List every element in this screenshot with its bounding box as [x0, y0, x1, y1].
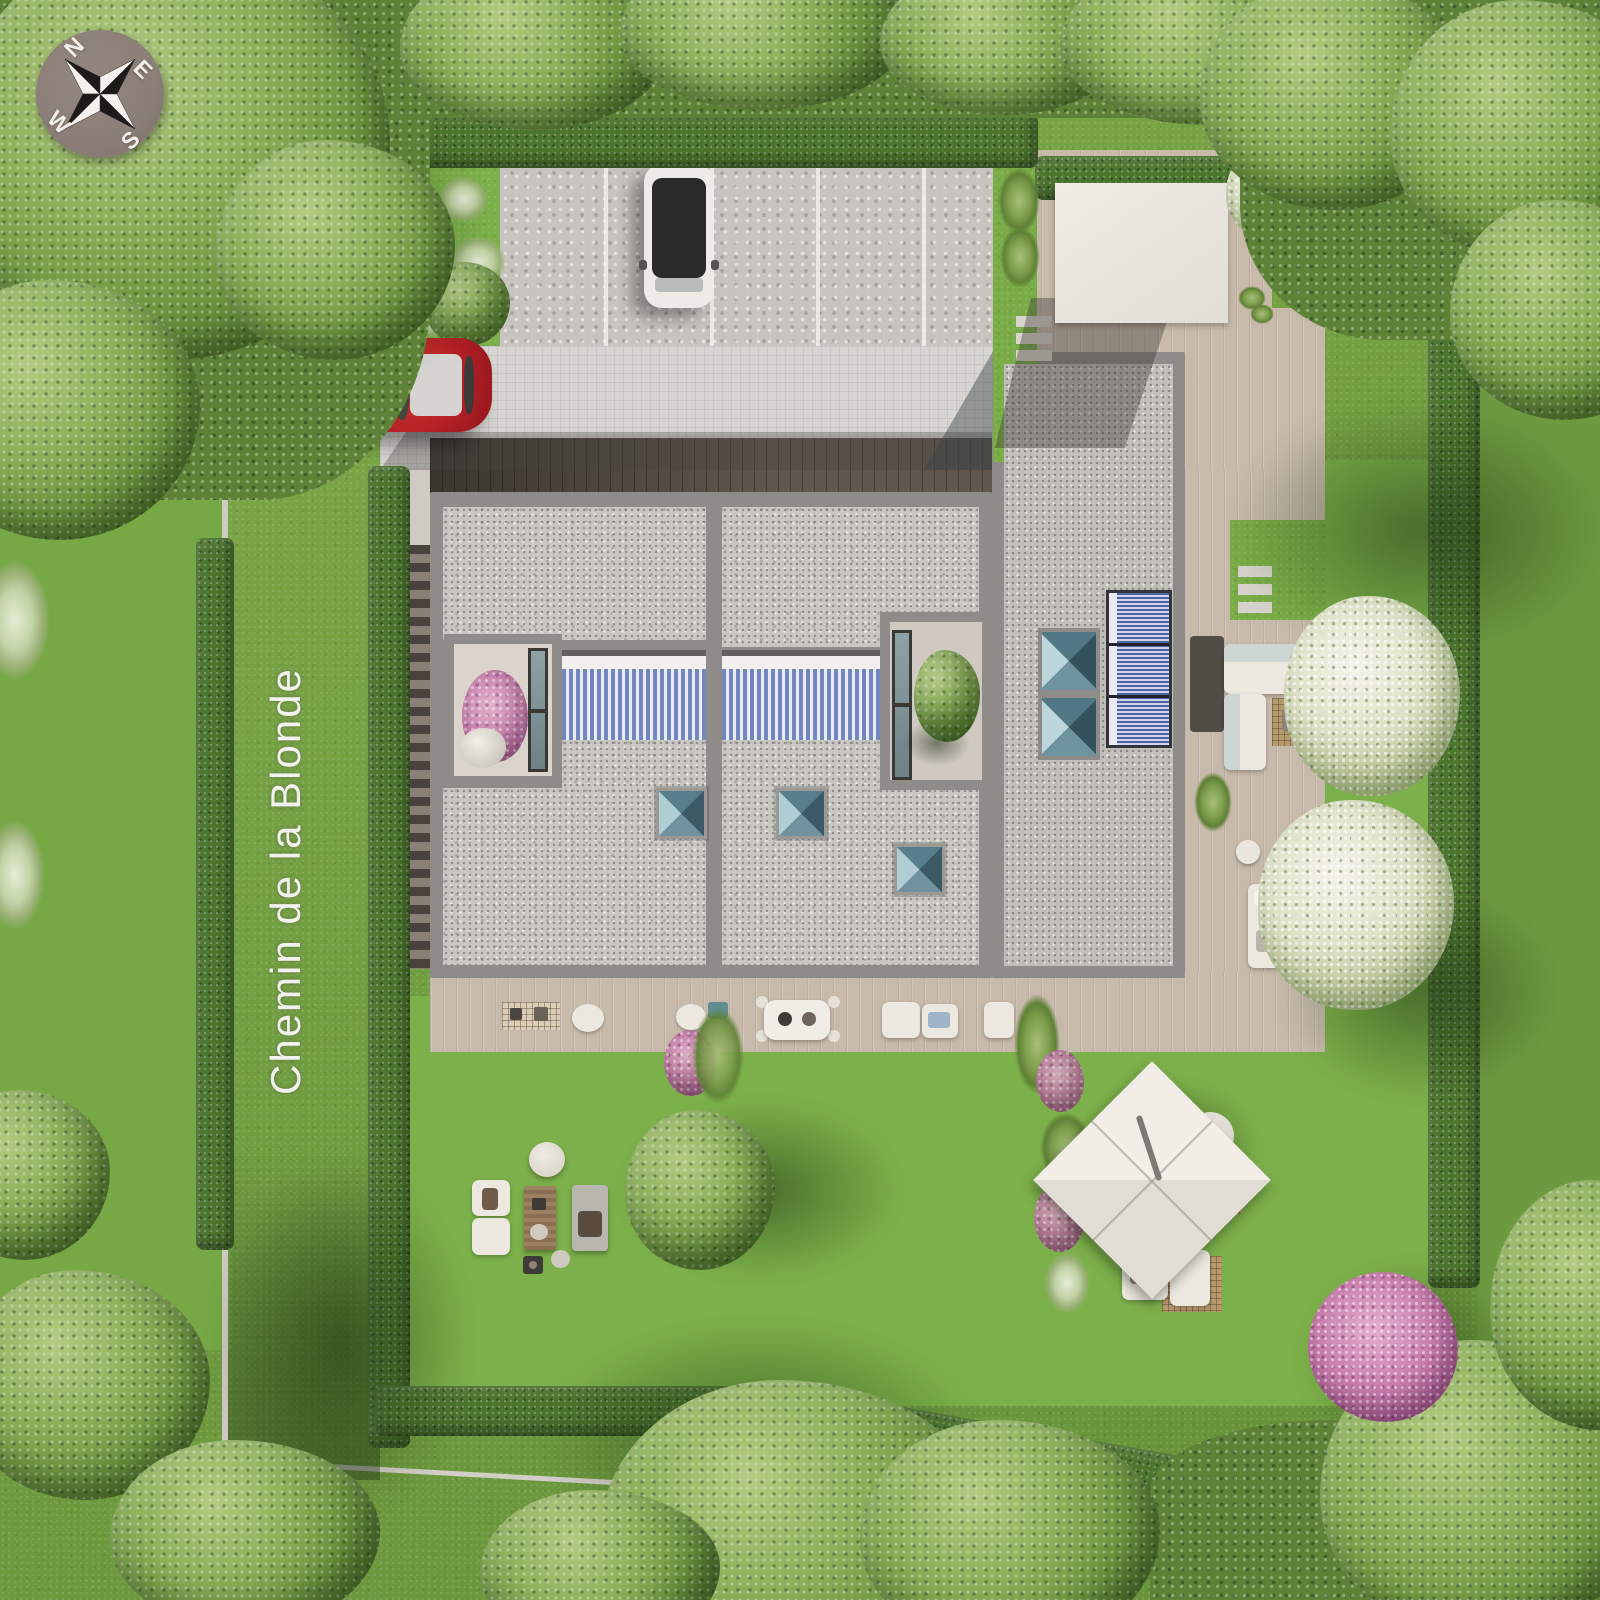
deck-item [510, 1008, 522, 1020]
awning-left [562, 669, 706, 740]
dining-chair [828, 1030, 840, 1042]
tall-plants [692, 1008, 744, 1104]
awning-edge [562, 656, 706, 669]
stall-line [816, 160, 820, 346]
roof-gravel [562, 740, 706, 788]
table-item [530, 1224, 548, 1240]
stall-line [604, 160, 608, 346]
shrub [1250, 304, 1274, 324]
side-table [1236, 840, 1260, 864]
garden-chair [472, 1218, 510, 1255]
pink-flowering-bush [1308, 1272, 1458, 1422]
patio-window [528, 648, 548, 772]
garden-chair [472, 1180, 510, 1216]
fire-pit [523, 1256, 543, 1274]
dining-table [764, 1000, 830, 1040]
roof-gravel [443, 507, 706, 640]
window-mullion [895, 703, 909, 707]
lounger [882, 1002, 920, 1038]
outdoor-sofa [1224, 694, 1266, 770]
hedge-road-west [196, 538, 234, 1250]
skylight-pyramid-large [1038, 628, 1100, 694]
solar-frame-edge [1109, 593, 1117, 745]
tableware [802, 1012, 816, 1026]
patio-east [880, 612, 992, 790]
site-plan: Chemin de la Blonde N E S W [0, 0, 1600, 1600]
skylight-pyramid [776, 788, 827, 839]
car-mirror [639, 260, 647, 270]
fire-pit-center [529, 1261, 537, 1269]
solar-divider [1109, 643, 1169, 646]
towel [928, 1012, 950, 1028]
roof-gravel [722, 740, 880, 788]
lounger [984, 1002, 1014, 1038]
slat-table [524, 1186, 556, 1250]
flower-border [1036, 1050, 1084, 1112]
white-flowering-tree [1284, 596, 1460, 796]
tree [625, 1110, 775, 1270]
deck-south [430, 972, 1325, 1052]
solar-divider [1109, 695, 1169, 698]
skylight-pyramid [656, 788, 707, 839]
garden-daybed [572, 1185, 608, 1251]
stall-line [922, 160, 926, 346]
skylight-pyramid [894, 844, 945, 895]
sofa-cushions [1224, 694, 1240, 770]
outdoor-kitchen [1190, 636, 1224, 732]
deck-item [534, 1007, 548, 1021]
tableware [778, 1012, 792, 1026]
flower-border [1044, 1252, 1090, 1314]
table-item [532, 1198, 546, 1210]
car-mirror [711, 260, 719, 270]
street-name-label: Chemin de la Blonde [262, 658, 332, 1104]
tree [215, 140, 455, 360]
white-car-roof [652, 178, 706, 278]
solar-panel [1106, 590, 1172, 748]
window-mullion [531, 709, 545, 713]
white-flowering-tree [1258, 800, 1454, 1010]
awning-right [722, 669, 880, 740]
ornamental-grass [1000, 226, 1040, 288]
side-table [551, 1250, 570, 1268]
patio-west [444, 634, 562, 786]
round-chair [572, 1004, 604, 1032]
boulder [460, 728, 506, 768]
ornamental-grass [998, 168, 1040, 234]
skylight-pyramid-large [1038, 694, 1100, 760]
cushion [482, 1188, 498, 1210]
compass-rose: N E S W [36, 30, 164, 158]
planter-grass [1194, 772, 1232, 832]
carport-canopy [1055, 183, 1228, 323]
lounger [922, 1004, 958, 1038]
dining-chair [828, 996, 840, 1008]
white-car-windshield [655, 278, 703, 292]
cushion [578, 1211, 602, 1237]
courtyard-tree [914, 650, 980, 742]
garden-pouf [529, 1142, 565, 1177]
deck-rug [502, 1002, 560, 1030]
awning-edge [722, 656, 880, 669]
white-car [644, 164, 714, 308]
parking-stalls [500, 160, 1032, 346]
